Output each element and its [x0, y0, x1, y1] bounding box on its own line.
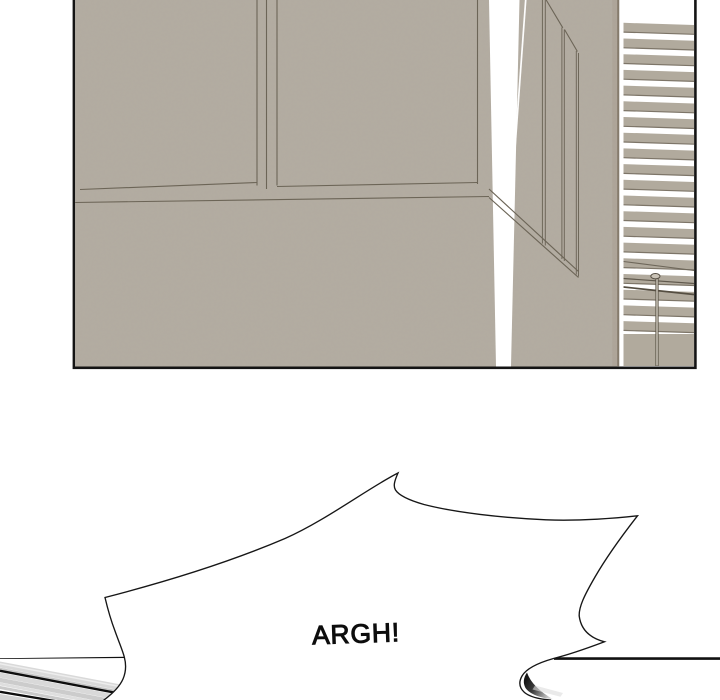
svg-text:ARGH!: ARGH! [311, 617, 400, 650]
